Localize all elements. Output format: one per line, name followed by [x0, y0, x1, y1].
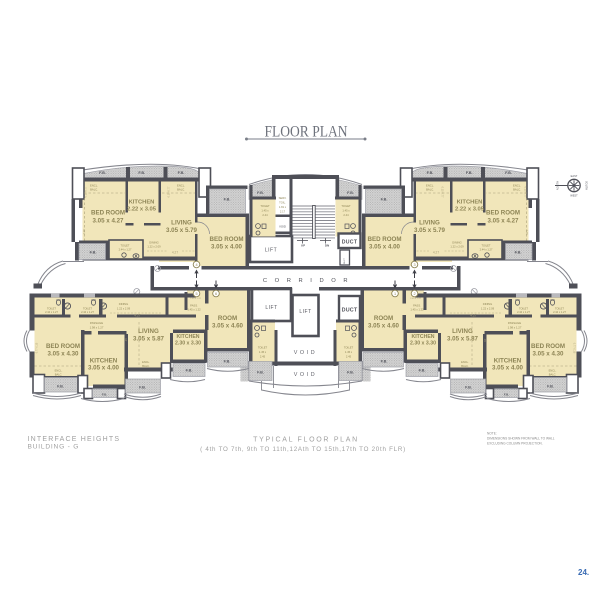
svg-text:0.15 6.77: 0.15 6.77	[84, 186, 88, 197]
svg-text:3.05 x 4.00: 3.05 x 4.00	[492, 365, 524, 372]
svg-text:3.05 x 5.79: 3.05 x 5.79	[414, 227, 446, 234]
svg-text:3.05 x 4.27: 3.05 x 4.27	[488, 218, 520, 225]
svg-text:BED ROOM: BED ROOM	[91, 210, 125, 217]
svg-text:2.44: 2.44	[262, 213, 268, 217]
svg-text:TOILET: TOILET	[83, 307, 92, 311]
svg-text:1.98 x 1.27: 1.98 x 1.27	[508, 326, 522, 330]
svg-text:ROOM: ROOM	[218, 315, 237, 322]
svg-text:2.44 x 1.27: 2.44 x 1.27	[553, 310, 566, 314]
svg-text:F.B.: F.B.	[381, 198, 388, 202]
svg-text:KITCHEN: KITCHEN	[90, 358, 118, 365]
svg-text:2.30 x 3.30: 2.30 x 3.30	[175, 341, 201, 347]
svg-text:LIVING: LIVING	[138, 328, 159, 335]
svg-text:F.B.: F.B.	[138, 171, 145, 175]
svg-text:LIFT: LIFT	[265, 248, 277, 254]
svg-text:F.B.: F.B.	[90, 251, 97, 255]
svg-text:VOID: VOID	[294, 350, 318, 356]
svg-text:0.77 0.15: 0.77 0.15	[573, 343, 576, 354]
svg-text:BALC.: BALC.	[90, 188, 98, 192]
svg-text:VOID: VOID	[279, 225, 286, 229]
svg-text:PASSAGE: PASSAGE	[90, 321, 103, 325]
svg-text:F.B.: F.B.	[505, 171, 512, 175]
svg-text:BALC.: BALC.	[461, 364, 469, 368]
svg-text:TYPICAL FLOOR PLAN: TYPICAL FLOOR PLAN	[253, 437, 359, 444]
svg-text:2.44 x 1.27: 2.44 x 1.27	[480, 248, 493, 252]
svg-text:1.22 x 2.09: 1.22 x 2.09	[147, 245, 161, 249]
svg-text:TOILET: TOILET	[341, 204, 351, 208]
svg-text:EAST: EAST	[571, 174, 578, 178]
svg-text:SERV.: SERV.	[279, 196, 287, 200]
svg-text:ENCL.: ENCL.	[513, 184, 521, 188]
svg-text:F.B.: F.B.	[515, 251, 522, 255]
svg-text:TOILET: TOILET	[481, 244, 490, 248]
svg-text:F.B.: F.B.	[99, 171, 106, 175]
svg-text:ENCL.: ENCL.	[426, 184, 434, 188]
svg-text:BED ROOM: BED ROOM	[486, 210, 520, 217]
svg-text:PASS.: PASS.	[190, 304, 198, 308]
svg-text:1.45 x 1.22: 1.45 x 1.22	[187, 308, 201, 312]
svg-text:ENCL.: ENCL.	[549, 369, 557, 373]
svg-text:3.05 x 4.30: 3.05 x 4.30	[48, 351, 80, 358]
svg-text:KITCHEN: KITCHEN	[176, 334, 199, 340]
svg-text:3.05 x 5.79: 3.05 x 5.79	[166, 227, 198, 234]
svg-text:3: 3	[413, 263, 415, 267]
svg-text:6: 6	[215, 292, 217, 296]
svg-text:WEST: WEST	[570, 194, 578, 198]
svg-text:1.45 x: 1.45 x	[342, 209, 350, 213]
svg-text:2.45: 2.45	[260, 355, 266, 359]
svg-text:2: 2	[413, 292, 415, 296]
svg-text:2.44: 2.44	[343, 213, 349, 217]
svg-text:ENCL.: ENCL.	[55, 369, 63, 373]
svg-text:BED ROOM: BED ROOM	[367, 236, 401, 243]
svg-text:PASS.: PASS.	[413, 304, 421, 308]
svg-text:TOILET: TOILET	[260, 204, 270, 208]
svg-text:2.44 x 1.27: 2.44 x 1.27	[45, 310, 58, 314]
svg-text:TOILET: TOILET	[120, 244, 129, 248]
svg-text:LIFT: LIFT	[265, 305, 277, 311]
svg-text:DUCT: DUCT	[342, 240, 358, 246]
svg-text:UP: UP	[301, 244, 305, 248]
svg-text:1.22 x 2.09: 1.22 x 2.09	[117, 307, 131, 311]
svg-text:TOILET: TOILET	[47, 307, 56, 311]
svg-text:LIFT: LIFT	[299, 309, 311, 315]
svg-text:3.05 x 4.60: 3.05 x 4.60	[368, 323, 400, 330]
svg-text:0.77 0.15: 0.77 0.15	[36, 342, 39, 353]
svg-text:ENCL.: ENCL.	[461, 360, 469, 364]
svg-text:3.05 x 4.60: 3.05 x 4.60	[212, 323, 244, 330]
svg-text:2.17: 2.17	[280, 210, 286, 214]
svg-text:ENCL.: ENCL.	[142, 360, 150, 364]
svg-text:F.B.: F.B.	[57, 385, 64, 389]
svg-text:EXCLUDING COLUMN PROJECTION.: EXCLUDING COLUMN PROJECTION.	[487, 442, 543, 446]
svg-text:F.B.: F.B.	[347, 371, 354, 375]
svg-text:BALC.: BALC.	[55, 373, 63, 377]
svg-text:2.28: 2.28	[82, 229, 86, 235]
svg-text:F.B.: F.B.	[466, 171, 473, 175]
svg-text:4.27: 4.27	[470, 314, 476, 318]
svg-text:BALC.: BALC.	[142, 364, 150, 368]
svg-text:F.B.: F.B.	[102, 393, 107, 397]
svg-text:ROOM: ROOM	[374, 315, 393, 322]
svg-text:DUCT: DUCT	[342, 308, 358, 314]
svg-text:DN: DN	[325, 244, 329, 248]
svg-text:TOILET: TOILET	[555, 307, 564, 311]
svg-text:DINING: DINING	[119, 302, 128, 306]
svg-text:KITCHEN: KITCHEN	[411, 334, 434, 340]
svg-text:0.15 6.77: 0.15 6.77	[524, 187, 528, 198]
svg-text:FLOOR PLAN: FLOOR PLAN	[265, 124, 348, 141]
svg-text:5: 5	[195, 292, 197, 296]
svg-text:BED ROOM: BED ROOM	[46, 343, 80, 350]
svg-text:INTERFACE HEIGHTS: INTERFACE HEIGHTS	[28, 436, 121, 443]
svg-text:ENCL.: ENCL.	[177, 184, 185, 188]
svg-text:3.05 x 4.27: 3.05 x 4.27	[93, 218, 125, 225]
svg-text:4.27: 4.27	[433, 251, 439, 255]
svg-text:1.22 x 2.09: 1.22 x 2.09	[450, 245, 464, 249]
svg-text:DUCT: DUCT	[344, 257, 346, 264]
svg-text:2.30 x 3.30: 2.30 x 3.30	[410, 341, 436, 347]
svg-text:4.27: 4.27	[172, 251, 178, 255]
svg-text:DINING: DINING	[452, 241, 461, 245]
svg-text:BED ROOM: BED ROOM	[209, 236, 243, 243]
svg-text:F.B.: F.B.	[547, 385, 554, 389]
svg-text:3.05 x 4.00: 3.05 x 4.00	[88, 365, 120, 372]
svg-text:BUILDING - G: BUILDING - G	[28, 444, 80, 451]
svg-text:PASSAGE: PASSAGE	[508, 321, 521, 325]
svg-text:TOILET: TOILET	[344, 346, 354, 350]
svg-text:BED ROOM: BED ROOM	[531, 343, 565, 350]
svg-text:.15: .15	[125, 338, 128, 342]
svg-text:BALC.: BALC.	[177, 188, 185, 192]
svg-text:2.44 x 1.27: 2.44 x 1.27	[119, 248, 132, 252]
svg-text:TOILET: TOILET	[258, 346, 268, 350]
svg-text:KITCHEN: KITCHEN	[129, 200, 155, 206]
svg-text:BALC.: BALC.	[513, 188, 521, 192]
svg-text:LIVING: LIVING	[171, 220, 192, 227]
svg-text:F.B.: F.B.	[465, 386, 472, 390]
svg-text:SOUTH: SOUTH	[585, 181, 589, 190]
svg-text:ENCL.: ENCL.	[90, 184, 98, 188]
svg-text:0.15 6.77: 0.15 6.77	[441, 187, 445, 198]
svg-text:0.15 6.77: 0.15 6.77	[167, 186, 171, 197]
svg-text:BALC.: BALC.	[426, 188, 434, 192]
svg-text:NOTE:: NOTE:	[487, 432, 497, 436]
svg-text:1.45 x: 1.45 x	[259, 350, 267, 354]
svg-text:F.B.: F.B.	[257, 371, 264, 375]
svg-text:2.44 x 1.27: 2.44 x 1.27	[517, 310, 530, 314]
svg-text:KITCHEN: KITCHEN	[457, 200, 483, 206]
svg-text:F.B.: F.B.	[381, 360, 388, 364]
svg-text:BALC.: BALC.	[549, 373, 557, 377]
svg-text:24.: 24.	[578, 568, 589, 577]
svg-text:TOIL.: TOIL.	[279, 201, 286, 205]
svg-text:3.05 x 4.00: 3.05 x 4.00	[211, 244, 243, 251]
svg-text:2.45: 2.45	[346, 355, 352, 359]
svg-text:( 4th TO 7th, 9th TO 11th,12At: ( 4th TO 7th, 9th TO 11th,12Ath TO 15th,…	[200, 446, 406, 453]
svg-text:KITCHEN: KITCHEN	[494, 358, 522, 365]
svg-text:2.44 x 1.27: 2.44 x 1.27	[81, 310, 94, 314]
svg-text:1.45 x: 1.45 x	[345, 350, 353, 354]
svg-text:1.81 x: 1.81 x	[279, 205, 287, 209]
svg-text:F.B.: F.B.	[139, 386, 146, 390]
svg-text:TOILET: TOILET	[519, 307, 528, 311]
svg-text:F.B.: F.B.	[257, 191, 264, 195]
svg-text:2.22 x 3.05: 2.22 x 3.05	[127, 207, 157, 213]
svg-text:F.B.: F.B.	[347, 191, 354, 195]
svg-text:1.22 x 2.09: 1.22 x 2.09	[481, 307, 495, 311]
svg-text:NORTH: NORTH	[556, 181, 560, 190]
svg-text:.15: .15	[483, 338, 486, 342]
svg-text:2.49 x 1.22: 2.49 x 1.22	[190, 298, 202, 300]
svg-text:4.27: 4.27	[134, 314, 140, 318]
svg-text:DIMENSIONS SHOWN FROM WALL TO: DIMENSIONS SHOWN FROM WALL TO WALL	[487, 437, 555, 441]
svg-text:2.22 x 3.05: 2.22 x 3.05	[455, 207, 485, 213]
svg-text:1: 1	[394, 292, 396, 296]
svg-text:DINING: DINING	[483, 302, 492, 306]
svg-text:1.45 x 1.22: 1.45 x 1.22	[410, 308, 424, 312]
svg-text:2.28: 2.28	[525, 229, 529, 235]
svg-text:1.98 x 1.27: 1.98 x 1.27	[90, 326, 104, 330]
svg-text:F.B.: F.B.	[224, 360, 231, 364]
svg-text:CORRIDOR: CORRIDOR	[263, 278, 355, 284]
svg-text:2.49 x 1.22: 2.49 x 1.22	[410, 298, 422, 300]
svg-text:3.05 x 4.30: 3.05 x 4.30	[533, 351, 565, 358]
svg-text:4: 4	[195, 263, 197, 267]
svg-text:F.B.: F.B.	[504, 393, 509, 397]
svg-text:F.B.: F.B.	[186, 369, 193, 373]
svg-text:F.B.: F.B.	[178, 171, 185, 175]
svg-text:1.45 x: 1.45 x	[261, 209, 269, 213]
svg-text:3.05 x 5.87: 3.05 x 5.87	[447, 336, 479, 343]
svg-text:DINING: DINING	[149, 241, 158, 245]
svg-text:LIVING: LIVING	[452, 328, 473, 335]
svg-text:3.05 x 4.00: 3.05 x 4.00	[369, 244, 401, 251]
svg-text:3.05 x 5.87: 3.05 x 5.87	[133, 336, 165, 343]
svg-text:F.B.: F.B.	[427, 171, 434, 175]
svg-text:LIVING: LIVING	[419, 220, 440, 227]
svg-text:F.B.: F.B.	[419, 369, 426, 373]
svg-text:F.B.: F.B.	[224, 198, 231, 202]
svg-text:VOID: VOID	[294, 372, 318, 378]
